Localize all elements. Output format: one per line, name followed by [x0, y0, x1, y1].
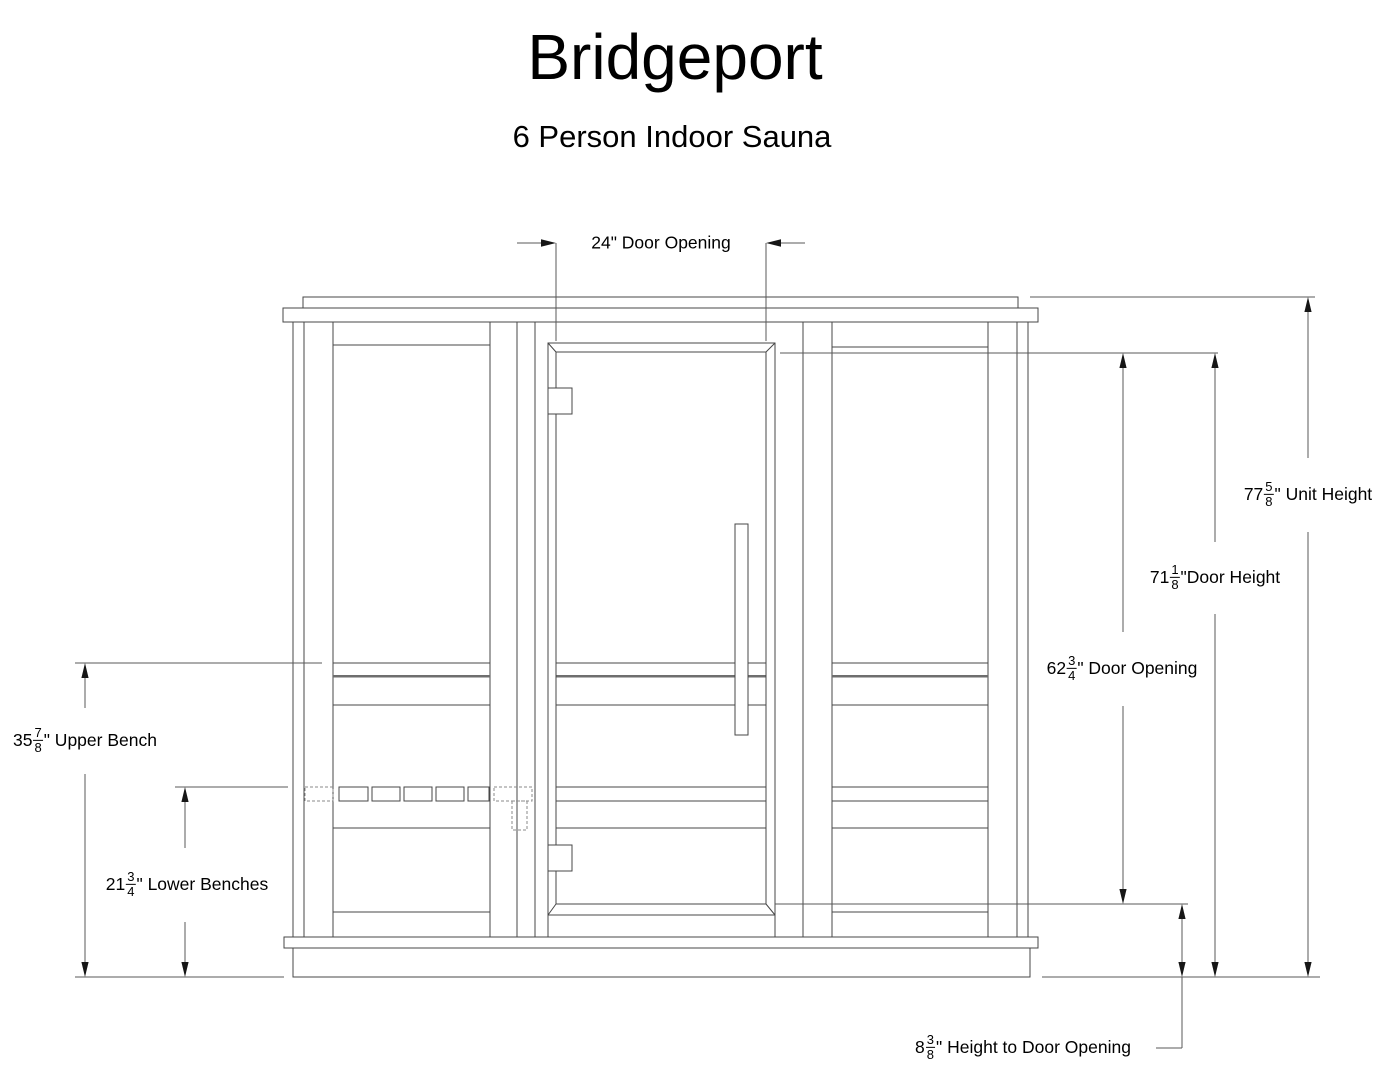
dim-lower-benches-label: 2134" Lower Benches — [106, 870, 268, 898]
dim-unit-height-label: 7758" Unit Height — [1244, 480, 1372, 508]
dim-door-opening-width-lines — [517, 243, 805, 341]
door-handle — [735, 524, 748, 735]
left-wall-panel — [333, 345, 490, 912]
sauna-technical-drawing — [0, 0, 1400, 1082]
dim-height-to-door-opening-line — [1156, 919, 1182, 1048]
base-platform — [284, 937, 1038, 977]
dim-upper-bench-label: 3578" Upper Bench — [13, 726, 157, 754]
wall-posts — [293, 322, 1028, 937]
dim-right-extension-lines — [775, 297, 1320, 977]
door-hinge-top — [548, 388, 572, 414]
page-subtitle: 6 Person Indoor Sauna — [513, 119, 832, 155]
roof — [283, 297, 1038, 322]
dim-height-to-door-opening-label: 838" Height to Door Opening — [915, 1033, 1131, 1061]
dim-door-height-label: 7118"Door Height — [1150, 563, 1280, 591]
dimension-arrowheads — [81, 239, 1311, 977]
sauna-spec-sheet: Bridgeport 6 Person Indoor Sauna 24" Doo… — [0, 0, 1400, 1082]
dim-door-opening-height-label: 6234" Door Opening — [1047, 654, 1198, 682]
page-title: Bridgeport — [527, 20, 822, 94]
door-hinge-bottom — [548, 845, 572, 871]
dim-door-opening-width-label: 24" Door Opening — [591, 233, 731, 254]
dim-left-extension-lines — [75, 663, 322, 977]
right-wall-panel — [832, 347, 988, 912]
bench-slats — [339, 787, 489, 801]
